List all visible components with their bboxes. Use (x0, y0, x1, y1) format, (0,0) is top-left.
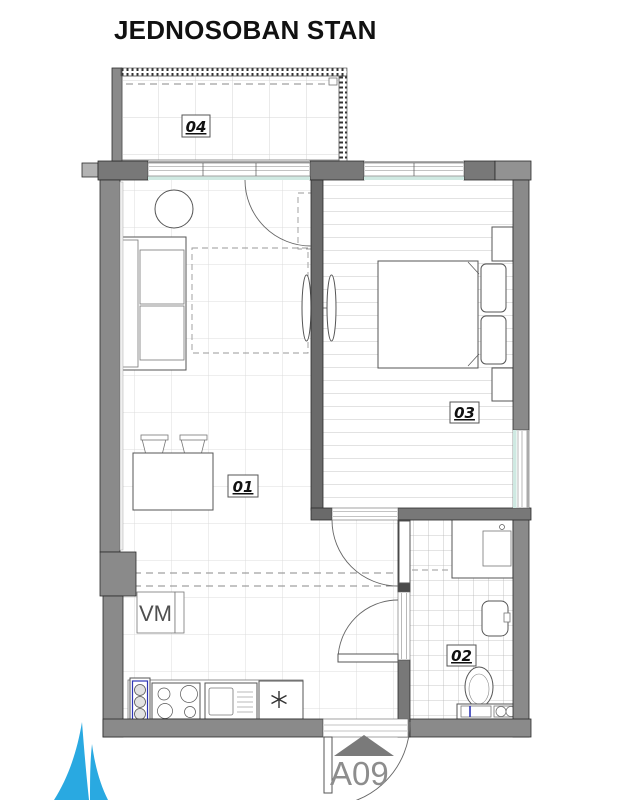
wall-partition-living-bedroom (311, 180, 323, 510)
wall-bathroom-top (398, 508, 531, 520)
balcony-post (112, 68, 122, 161)
room-label-bathroom: 02 (447, 645, 476, 666)
svg-text:04: 04 (186, 118, 207, 136)
faucet (504, 613, 510, 622)
wall-bottom-right (408, 719, 531, 737)
chair-back (141, 435, 168, 440)
entrance-marker: A09 (330, 735, 394, 792)
wall-left-lower (103, 596, 123, 737)
wall-left-pier (100, 552, 136, 596)
wall-bottom-left (103, 719, 323, 737)
floor-plan: JEDNOSOBAN STAN (0, 0, 632, 800)
window-accent (513, 430, 517, 508)
balcony-floor (122, 76, 339, 160)
washing-machine-label: VM (139, 601, 172, 626)
pillow (481, 264, 506, 312)
washbasin (482, 601, 510, 636)
wall-right-lower (513, 508, 529, 737)
unit-label: A09 (330, 755, 389, 792)
wall-top-left-block (98, 161, 148, 180)
vanity (457, 704, 517, 719)
wall-left-upper (100, 180, 120, 552)
sink-basin (209, 688, 233, 715)
wall-right-upper (513, 180, 529, 430)
fridge (259, 681, 303, 719)
bed-mattress (378, 261, 478, 368)
svg-text:01: 01 (233, 478, 254, 496)
balcony-railing-right (339, 76, 347, 161)
hallway-floor (311, 520, 398, 719)
window-accent (148, 177, 310, 181)
room-label-balcony: 04 (182, 115, 210, 137)
sofa-cushion (140, 250, 184, 304)
wall-top-center-pier (310, 161, 364, 180)
room-label-living: 01 (228, 475, 258, 497)
balcony-railing-top (121, 68, 347, 76)
sofa (120, 237, 186, 370)
tall-unit (130, 678, 150, 722)
radiator-bedroom (327, 275, 336, 341)
stove (152, 683, 200, 719)
sink (205, 683, 257, 719)
wall-top-right-corner (495, 161, 531, 180)
sofa-cushion (140, 306, 184, 360)
kitchen (128, 678, 303, 722)
door-leaf-bathroom (338, 654, 398, 662)
nightstand (492, 227, 513, 261)
wall-top-right-block (464, 161, 495, 180)
window-accent (364, 177, 464, 181)
balcony (112, 68, 347, 161)
window-bedroom (364, 161, 464, 180)
radiator-living (302, 275, 311, 341)
page-title: JEDNOSOBAN STAN (114, 15, 377, 45)
entrance-arrow-icon (334, 735, 394, 756)
svg-text:03: 03 (454, 404, 475, 422)
logo-sail-large-icon (54, 722, 89, 800)
pillow (481, 316, 506, 364)
toilet (465, 667, 493, 707)
dining-table (133, 453, 213, 510)
sofa-backrest (122, 240, 138, 367)
svg-text:02: 02 (451, 647, 472, 665)
logo-sailboat (54, 722, 108, 800)
coffee-table (155, 190, 193, 228)
balcony-drain (329, 78, 337, 85)
window-right-wall (513, 430, 529, 508)
wall-inner-lining (120, 182, 123, 550)
shower-tray (483, 531, 511, 566)
wall-bedroom-bottom-segment (311, 508, 332, 520)
window-living-room (148, 161, 310, 180)
door-leaf-bedroom (399, 521, 410, 583)
chair-back (180, 435, 207, 440)
washing-machine: VM (137, 592, 184, 633)
nightstand (492, 368, 513, 401)
wall-stub-left (82, 163, 98, 177)
room-label-bedroom: 03 (450, 402, 479, 423)
logo-sail-small-icon (90, 744, 108, 800)
